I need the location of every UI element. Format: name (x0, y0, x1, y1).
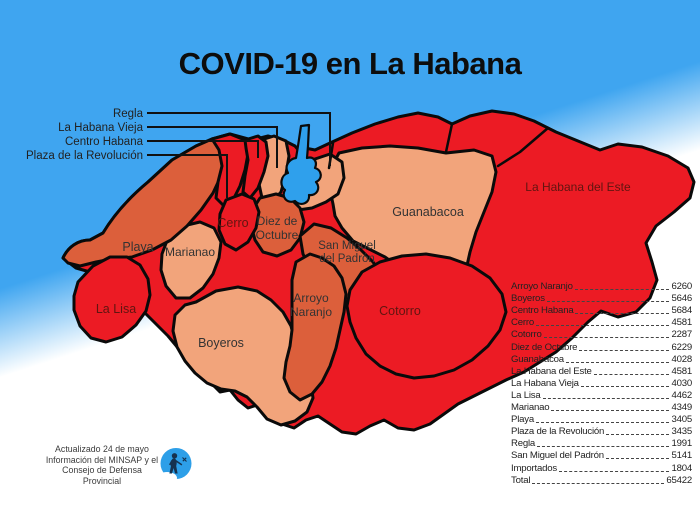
leader-dashes (606, 434, 669, 435)
leader-dashes (606, 458, 670, 459)
stats-value: 65422 (666, 475, 692, 487)
stats-value: 4581 (671, 317, 692, 329)
stats-value: 6229 (671, 342, 692, 354)
stats-name: Cotorro (511, 329, 542, 341)
stats-value: 1804 (671, 463, 692, 475)
update-note-line-2: Información del MINSAP y el (44, 455, 160, 466)
stats-row: Centro Habana5684 (511, 305, 692, 317)
stats-name: Arroyo Naranjo (511, 281, 573, 293)
callout-label-centro-habana: Centro Habana (65, 136, 144, 148)
stats-name: La Lisa (511, 390, 541, 402)
map-label-san-miguel-1: San Miguel (318, 240, 376, 252)
leader-dashes (537, 446, 669, 447)
stats-value: 2287 (671, 329, 692, 341)
stats-name: Centro Habana (511, 305, 573, 317)
stats-value: 4581 (671, 366, 692, 378)
leader-dashes (544, 337, 670, 338)
leader-dashes (581, 386, 670, 387)
map-label-diez-de-octubre-1: Diez de (257, 214, 298, 228)
stats-value: 5646 (671, 293, 692, 305)
stats-name: Boyeros (511, 293, 545, 305)
map-label-la-lisa: La Lisa (96, 302, 136, 316)
stats-row: Playa3405 (511, 414, 692, 426)
stats-value: 4349 (671, 402, 692, 414)
stats-row: La Lisa4462 (511, 390, 692, 402)
stats-row: Cerro4581 (511, 317, 692, 329)
stats-row: La Habana del Este4581 (511, 366, 692, 378)
leader-dashes (551, 410, 669, 411)
leader-dashes (532, 483, 664, 484)
leader-dashes (547, 301, 670, 302)
map-label-arroyo-2: Naranjo (290, 305, 332, 319)
map-label-arroyo-1: Arroyo (293, 291, 329, 305)
stats-row: Regla1991 (511, 438, 692, 450)
stats-value: 4028 (671, 354, 692, 366)
stats-row: Guanabacoa4028 (511, 354, 692, 366)
leader-dashes (543, 398, 670, 399)
leader-dashes (536, 325, 669, 326)
stats-row: Arroyo Naranjo6260 (511, 281, 692, 293)
stats-name: Marianao (511, 402, 549, 414)
stats-row: Diez de Octubre6229 (511, 341, 692, 353)
stats-value: 6260 (671, 281, 692, 293)
map-label-cotorro: Cotorro (379, 304, 421, 318)
map-label-cerro: Cerro (217, 216, 248, 230)
stats-row: Boyeros5646 (511, 293, 692, 305)
stats-name: Importados (511, 463, 557, 475)
giraldilla-logo (158, 446, 194, 482)
stats-row: Cotorro2287 (511, 329, 692, 341)
stats-name: San Miguel del Padrón (511, 450, 604, 462)
stats-name: Cerro (511, 317, 534, 329)
leader-dashes (594, 374, 670, 375)
stats-row: Importados1804 (511, 462, 692, 474)
infographic-canvas: COVID-19 en La Habana (0, 0, 700, 513)
leader-dashes (559, 471, 669, 472)
callout-label-plaza: Plaza de la Revolución (26, 150, 143, 162)
stats-name: Total (511, 475, 530, 487)
callout-label-la-habana-vieja: La Habana Vieja (58, 122, 143, 134)
map-label-la-habana-del-este: La Habana del Este (525, 180, 631, 194)
map-label-boyeros: Boyeros (198, 336, 244, 350)
stats-value: 3435 (671, 426, 692, 438)
update-note: Actualizado 24 de mayo Información del M… (44, 444, 160, 486)
stats-value: 3405 (671, 414, 692, 426)
stats-row: Marianao4349 (511, 402, 692, 414)
stats-value: 1991 (671, 438, 692, 450)
stats-name: La Habana Vieja (511, 378, 579, 390)
stats-name: Guanabacoa (511, 354, 564, 366)
update-note-line-1: Actualizado 24 de mayo (44, 444, 160, 455)
stats-name: Regla (511, 438, 535, 450)
map-label-guanabacoa: Guanabacoa (392, 205, 464, 219)
leader-dashes (579, 350, 669, 351)
stats-table: Arroyo Naranjo6260 Boyeros5646 Centro Ha… (511, 281, 692, 487)
map-label-playa: Playa (122, 240, 153, 254)
map-label-diez-de-octubre-2: Octubre (256, 228, 299, 242)
map-label-san-miguel-2: del Padrón (319, 253, 375, 265)
leader-dashes (566, 362, 670, 363)
stats-name: Plaza de la Revolución (511, 426, 604, 438)
stats-row: La Habana Vieja4030 (511, 378, 692, 390)
map-label-marianao: Marianao (165, 245, 215, 259)
stats-value: 4462 (671, 390, 692, 402)
callout-label-regla: Regla (113, 108, 144, 120)
havana-bay (281, 125, 320, 204)
stats-name: Diez de Octubre (511, 342, 577, 354)
stats-row: Plaza de la Revolución3435 (511, 426, 692, 438)
stats-value: 5684 (671, 305, 692, 317)
leader-dashes (575, 289, 670, 290)
stats-row: Total65422 (511, 475, 692, 487)
stats-value: 4030 (671, 378, 692, 390)
stats-row: San Miguel del Padrón5141 (511, 450, 692, 462)
stats-name: La Habana del Este (511, 366, 592, 378)
stats-name: Playa (511, 414, 534, 426)
leader-dashes (575, 313, 669, 314)
update-note-line-3: Consejo de Defensa Provincial (44, 465, 160, 486)
leader-dashes (536, 422, 669, 423)
stats-value: 5141 (671, 450, 692, 462)
